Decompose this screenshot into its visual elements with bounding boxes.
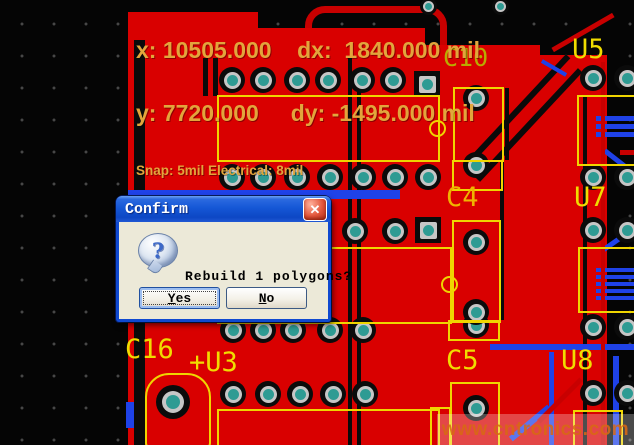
no-button[interactable]: No	[226, 287, 307, 309]
component-outline-u7	[578, 247, 634, 313]
designator-label: U7	[574, 184, 607, 211]
pad	[580, 65, 606, 91]
designator-label: U8	[561, 347, 594, 374]
pad	[220, 381, 246, 407]
dialog-button-row: Yes No	[139, 287, 307, 309]
yes-button[interactable]: Yes	[139, 287, 220, 309]
pad	[382, 218, 408, 244]
coordinate-hud: x: 10505.000 dx: 1840.000 mil y: 7720.00…	[136, 1, 480, 215]
pad	[614, 65, 634, 91]
hud-dxdy-line: y: 7720.000 dy: -1495.000 mil	[136, 100, 480, 127]
pad	[614, 164, 634, 190]
dialog-title: Confirm	[125, 201, 303, 218]
question-icon: ?	[138, 233, 178, 275]
watermark: www.cntronics.com	[437, 414, 634, 445]
pad	[614, 314, 634, 340]
dialog-titlebar[interactable]: Confirm ✕	[116, 196, 331, 222]
component-outline-c5a	[448, 320, 500, 341]
trace	[505, 88, 509, 160]
close-icon: ✕	[310, 203, 321, 216]
designator-label: U5	[572, 36, 605, 63]
component-outline-u5	[577, 95, 634, 166]
hud-snap-line: Snap: 5mil Electrical: 8mil	[136, 163, 480, 179]
component-outline-c16	[145, 373, 211, 445]
designator-label: +U3	[189, 349, 238, 376]
dialog-body: ? Rebuild 1 polygons? Yes No	[119, 222, 328, 319]
designator-label: C5	[446, 347, 479, 374]
pad	[287, 381, 313, 407]
pad	[580, 314, 606, 340]
close-button[interactable]: ✕	[303, 198, 327, 221]
component-outline-c4b	[452, 220, 501, 323]
pad	[614, 380, 634, 406]
pad	[492, 0, 509, 15]
pad	[580, 217, 606, 243]
pad	[580, 380, 606, 406]
pad	[352, 381, 378, 407]
pin1-notch	[441, 276, 458, 293]
pad	[320, 381, 346, 407]
confirm-dialog: Confirm ✕ ? Rebuild 1 polygons? Yes No	[116, 196, 331, 322]
pad	[415, 217, 441, 243]
pad	[255, 381, 281, 407]
pad	[342, 218, 368, 244]
dialog-message: Rebuild 1 polygons?	[185, 269, 352, 284]
trace-blue	[126, 402, 134, 428]
component-outline-dip3	[217, 409, 440, 445]
pcb-editor-viewport[interactable]: C10U5C4U7C5U8C16+U3 www.cntronics.com x:…	[0, 0, 634, 445]
pad	[614, 217, 634, 243]
designator-label: C16	[125, 336, 174, 363]
hud-xy-line: x: 10505.000 dx: 1840.000 mil	[136, 37, 480, 64]
watermark-text: www.cntronics.com	[442, 419, 629, 441]
